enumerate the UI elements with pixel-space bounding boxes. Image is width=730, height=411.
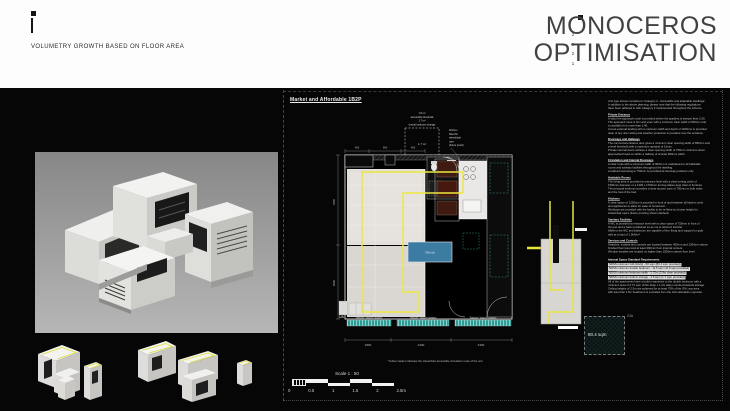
scale-bar-graphic <box>292 378 402 386</box>
scale-bar-label: Scale 1 : 50 <box>288 371 406 376</box>
svg-text:fitted for: fitted for <box>449 133 458 136</box>
ua-label: UA <box>339 315 345 319</box>
massing-render-image <box>35 152 278 333</box>
massing-studies-row <box>30 338 275 408</box>
svg-text:Window / balcony location: Window / balcony location <box>356 317 383 320</box>
svg-text:900: 900 <box>383 146 388 150</box>
blue-furniture: 750 min <box>408 242 452 262</box>
window-strips: Window / balcony location Window / balco… <box>347 317 511 326</box>
svg-text:wheelchair: wheelchair <box>449 137 461 140</box>
yellow-marker-note: *Yellow marker indicates the wheelchair … <box>330 360 540 366</box>
svg-text:(future proof): (future proof) <box>449 144 464 147</box>
bottom-dimension-line: 1800 2400 2300 <box>345 338 512 347</box>
svg-text:accessible threshold: accessible threshold <box>411 116 434 119</box>
board-subtitle: VOLUMETRY GROWTH BASED ON FLOOR AREA <box>31 44 184 50</box>
top-dimension-line: 450 900 450 <box>345 146 425 154</box>
massing-study-6 <box>237 360 252 386</box>
svg-text:450: 450 <box>411 146 416 150</box>
divider-dashed-horizontal <box>283 91 723 92</box>
left-dimension-line: 3450 2900 <box>332 155 340 319</box>
svg-text:750 min: 750 min <box>425 251 435 255</box>
svg-text:Window / balcony location: Window / balcony location <box>470 317 497 320</box>
svg-text:(extra) bedroom storage: (extra) bedroom storage <box>409 123 436 126</box>
guide-dotted-bottom <box>283 400 723 401</box>
title-line-1: MONOCEROS <box>534 13 717 40</box>
regulations-text: Unit type shown complies to 'Category 2 … <box>608 100 712 295</box>
title-line-2: OPTIMISATION <box>534 40 717 67</box>
scale-bar-cap <box>292 379 306 386</box>
regulations-text-column: Unit type shown complies to 'Category 2 … <box>608 100 712 305</box>
logo-stem-icon <box>31 18 33 33</box>
logo-mark-icon <box>31 11 36 16</box>
gia-corner-label: GIA <box>627 314 633 318</box>
svg-text:user: user <box>449 140 454 143</box>
presentation-board: VOLUMETRY GROWTH BASED ON FLOOR AREA 202… <box>0 0 730 411</box>
kitchen <box>435 159 459 221</box>
gia-area-label: 80.4 sqm <box>588 332 607 337</box>
plan-title: Market and Affordable 1B2P <box>290 97 362 103</box>
storage-zone-label: 1.7 m² <box>418 142 427 146</box>
core-shaft <box>553 225 559 263</box>
svg-text:3450: 3450 <box>332 198 336 205</box>
svg-text:1.5 m²: 1.5 m² <box>418 112 425 115</box>
storage-annotation: 1.5 m² accessible threshold 1.7 m² (extr… <box>409 112 436 126</box>
svg-text:Kitchen: Kitchen <box>449 129 458 132</box>
svg-text:Window / balcony location: Window / balcony location <box>410 317 437 320</box>
bedroom-right <box>487 157 512 317</box>
svg-text:450: 450 <box>355 146 360 150</box>
core-diagram <box>535 195 595 335</box>
svg-text:2900: 2900 <box>332 279 336 286</box>
svg-text:2400: 2400 <box>418 343 425 347</box>
svg-text:2300: 2300 <box>478 343 485 347</box>
svg-text:1800: 1800 <box>365 343 372 347</box>
svg-text:1.7 m²: 1.7 m² <box>418 120 425 123</box>
scale-bar: Scale 1 : 50 00.511.522.5m <box>288 371 406 393</box>
massing-study-3 <box>84 362 102 400</box>
floor-plan-drawing: 1.5 m² accessible threshold 1.7 m² (extr… <box>325 105 540 355</box>
guide-dotted-right <box>722 90 723 401</box>
massing-study-4 <box>138 341 176 382</box>
divider-dashed-vertical <box>283 90 284 401</box>
entry-bar <box>558 326 578 329</box>
massing-study-2 <box>58 376 75 400</box>
scale-bar-ticks: 00.511.522.5m <box>288 388 406 393</box>
massing-study-5 <box>178 351 218 402</box>
board-title: MONOCEROS OPTIMISATION <box>534 13 717 67</box>
kitchen-annotation: Kitchen fitted for wheelchair user (futu… <box>449 129 464 147</box>
